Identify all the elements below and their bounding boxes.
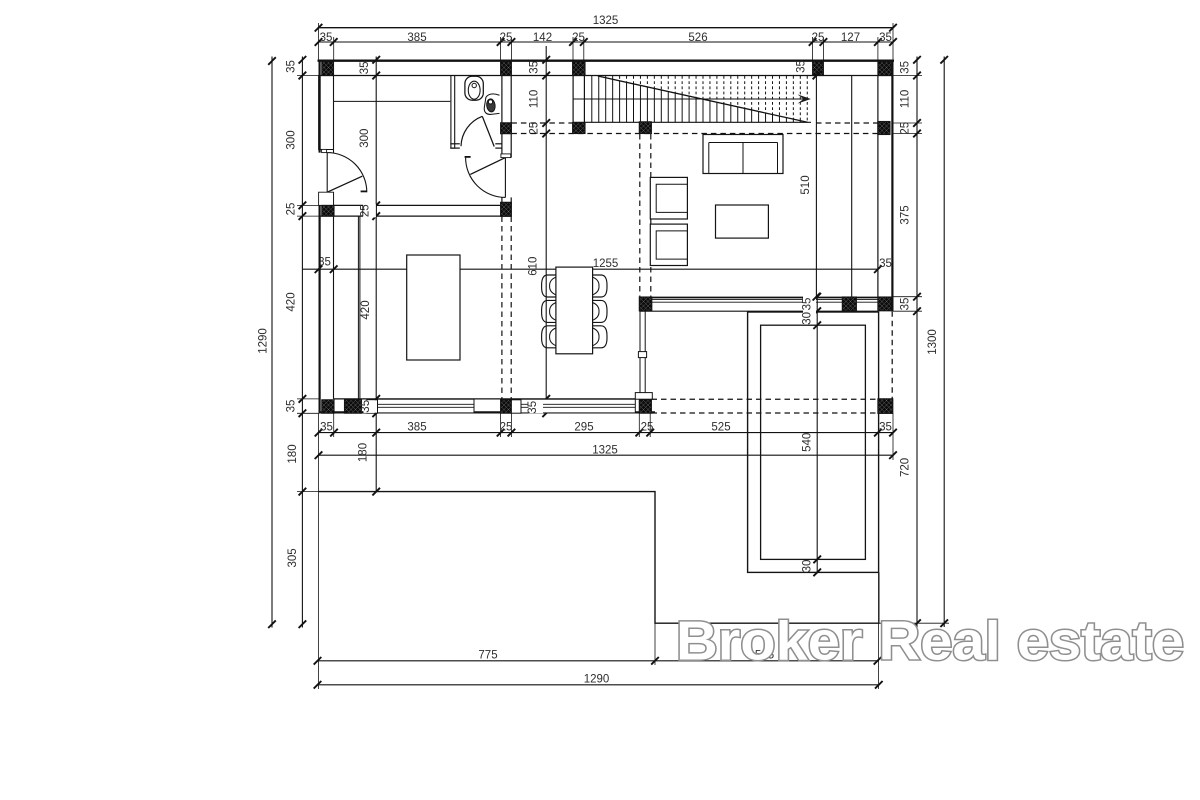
svg-text:610: 610 <box>528 257 540 276</box>
svg-text:25: 25 <box>360 204 372 217</box>
svg-text:35: 35 <box>359 61 371 74</box>
svg-text:30: 30 <box>801 312 813 325</box>
svg-text:300: 300 <box>359 129 371 148</box>
svg-text:1300: 1300 <box>927 329 939 355</box>
svg-text:35: 35 <box>796 60 808 73</box>
svg-text:35: 35 <box>899 61 911 74</box>
svg-text:305: 305 <box>287 548 299 567</box>
svg-text:127: 127 <box>841 32 860 44</box>
svg-text:35: 35 <box>899 298 911 311</box>
svg-text:142: 142 <box>533 32 552 44</box>
svg-text:35: 35 <box>879 422 892 434</box>
svg-text:1325: 1325 <box>592 444 618 456</box>
svg-text:525: 525 <box>711 422 730 434</box>
svg-text:295: 295 <box>574 422 593 434</box>
svg-text:35: 35 <box>320 422 333 434</box>
svg-text:540: 540 <box>801 433 813 452</box>
svg-text:25: 25 <box>500 32 513 44</box>
svg-text:1290: 1290 <box>258 328 270 354</box>
svg-text:35: 35 <box>286 400 298 413</box>
svg-text:35: 35 <box>286 60 298 73</box>
svg-text:1325: 1325 <box>593 15 619 27</box>
svg-text:180: 180 <box>358 443 370 462</box>
svg-text:1290: 1290 <box>584 674 610 686</box>
svg-text:35: 35 <box>529 61 541 74</box>
svg-text:35: 35 <box>879 258 892 270</box>
svg-text:720: 720 <box>899 458 911 477</box>
svg-text:25: 25 <box>812 32 825 44</box>
svg-text:35: 35 <box>879 32 892 44</box>
svg-text:420: 420 <box>286 292 298 311</box>
svg-text:35: 35 <box>801 298 813 311</box>
svg-text:526: 526 <box>688 32 707 44</box>
svg-text:375: 375 <box>899 205 911 224</box>
svg-text:35: 35 <box>320 32 333 44</box>
svg-text:180: 180 <box>287 444 299 463</box>
svg-text:110: 110 <box>529 90 541 108</box>
svg-text:30: 30 <box>801 560 813 573</box>
svg-text:420: 420 <box>360 300 372 319</box>
svg-text:385: 385 <box>407 422 426 434</box>
svg-text:25: 25 <box>286 203 298 216</box>
svg-text:25: 25 <box>641 422 654 434</box>
svg-text:25: 25 <box>899 122 911 135</box>
svg-text:Broker Real estate: Broker Real estate <box>676 610 1184 672</box>
svg-text:775: 775 <box>478 650 497 662</box>
svg-text:25: 25 <box>529 122 541 135</box>
svg-text:300: 300 <box>286 130 298 149</box>
svg-text:1255: 1255 <box>593 258 619 270</box>
svg-text:110: 110 <box>899 90 911 108</box>
svg-text:385: 385 <box>407 32 426 44</box>
svg-text:510: 510 <box>800 175 812 194</box>
svg-text:25: 25 <box>500 422 513 434</box>
svg-text:35: 35 <box>360 400 372 413</box>
svg-text:25: 25 <box>572 32 585 44</box>
svg-text:35: 35 <box>527 401 539 414</box>
